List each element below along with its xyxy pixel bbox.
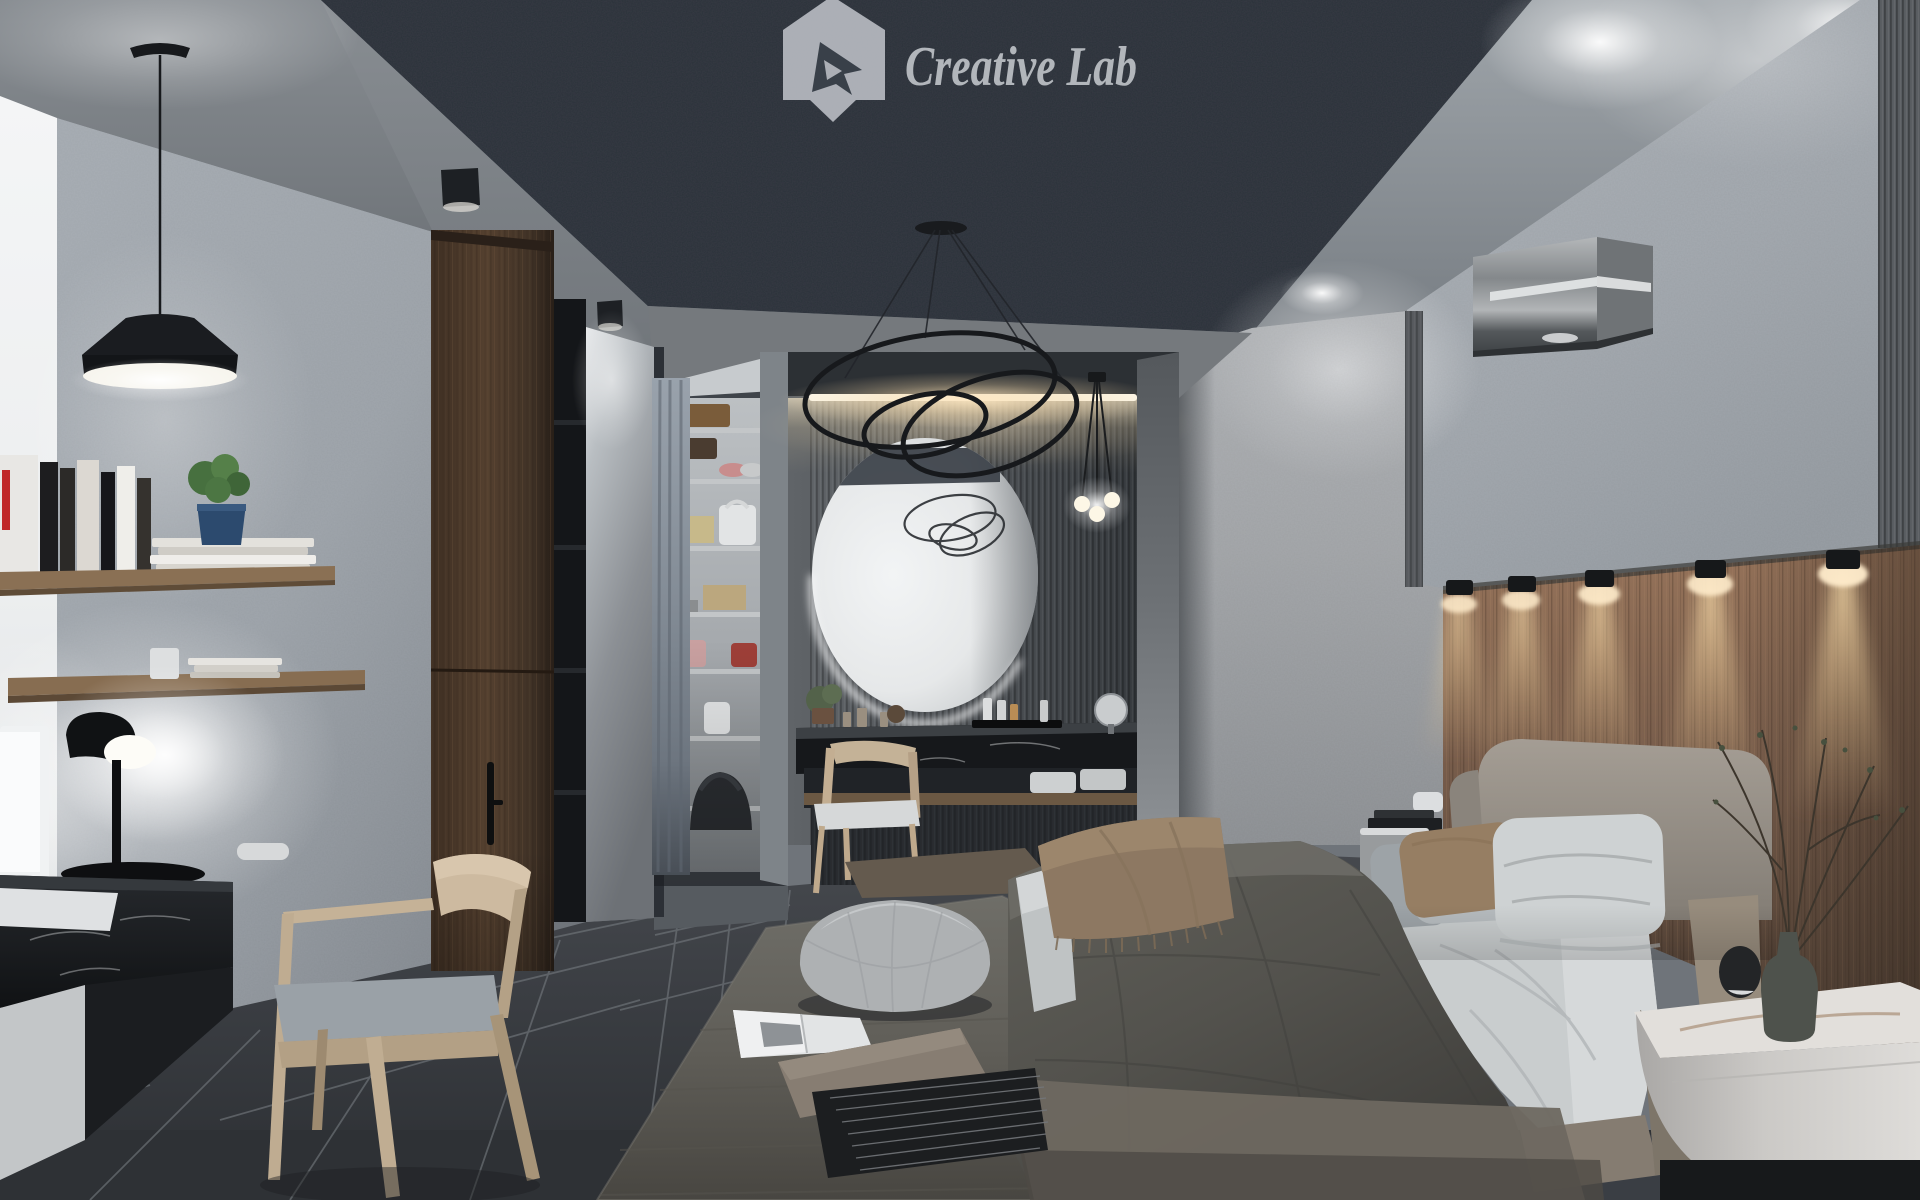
svg-text:Creative Lab: Creative Lab — [905, 36, 1137, 98]
